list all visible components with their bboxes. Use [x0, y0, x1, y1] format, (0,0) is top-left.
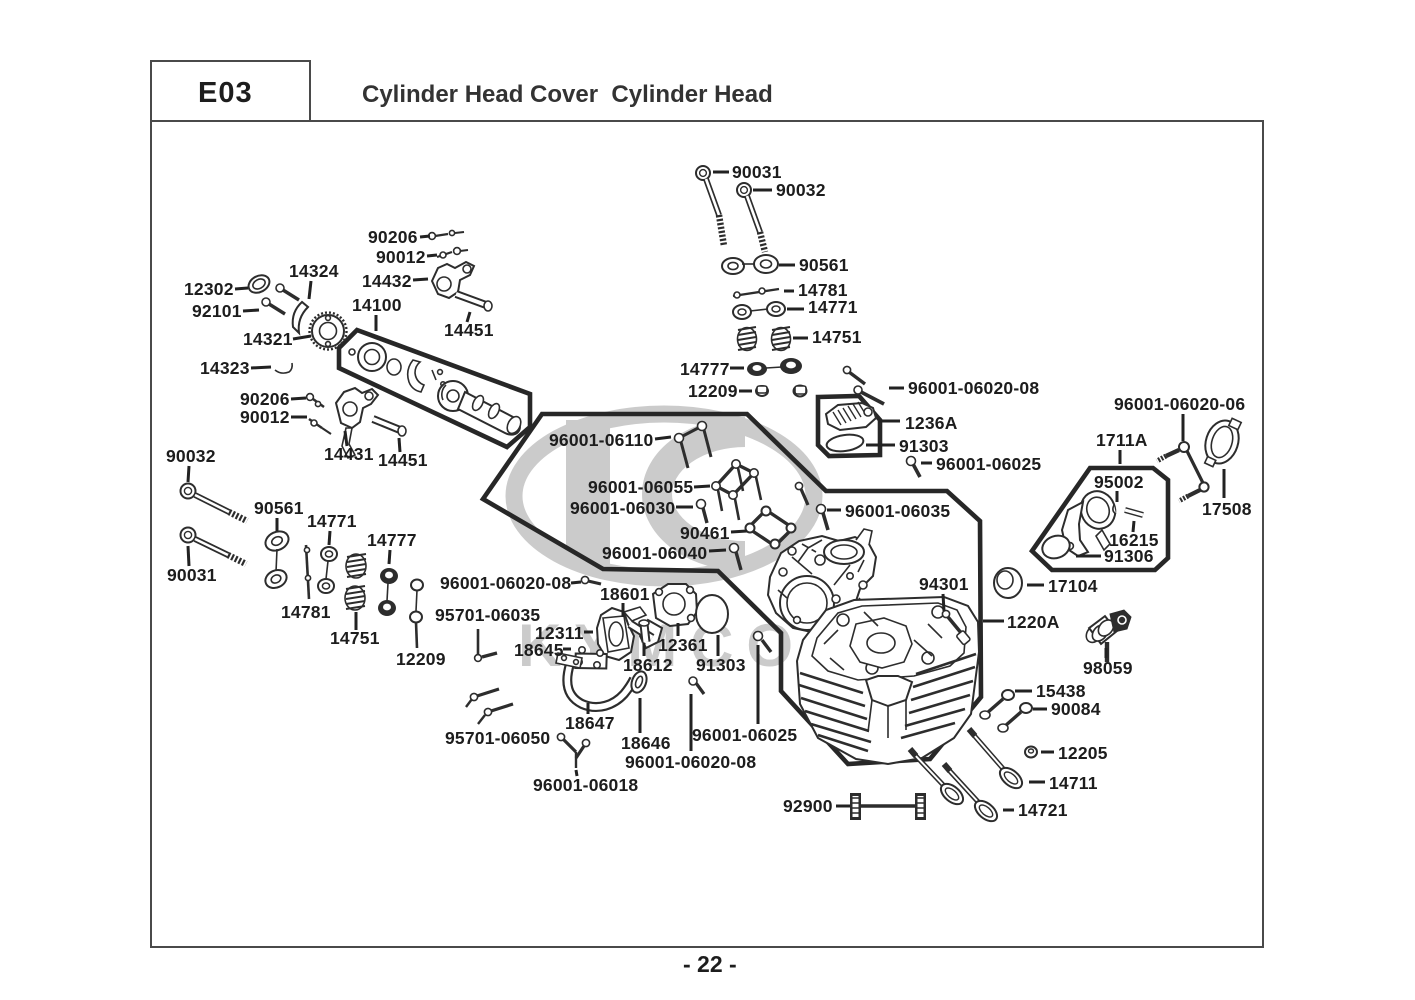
- svg-text:90031: 90031: [732, 162, 782, 182]
- svg-text:17508: 17508: [1202, 499, 1252, 519]
- svg-text:90032: 90032: [776, 180, 826, 200]
- svg-text:96001-06040: 96001-06040: [602, 543, 707, 563]
- svg-text:14751: 14751: [812, 327, 862, 347]
- svg-text:15438: 15438: [1036, 681, 1086, 701]
- svg-text:14451: 14451: [378, 450, 428, 470]
- svg-text:90032: 90032: [166, 446, 216, 466]
- svg-text:18645: 18645: [514, 640, 564, 660]
- svg-text:96001-06020-08: 96001-06020-08: [625, 752, 756, 772]
- svg-text:12209: 12209: [688, 381, 738, 401]
- svg-text:90084: 90084: [1051, 699, 1101, 719]
- svg-text:14432: 14432: [362, 271, 412, 291]
- svg-text:Cylinder Head Cover Cylinder: Cylinder Head Cover Cylinder Head: [362, 81, 773, 108]
- svg-text:96001-06035: 96001-06035: [845, 501, 950, 521]
- svg-text:E03: E03: [198, 77, 253, 109]
- svg-text:90461: 90461: [680, 523, 730, 543]
- svg-text:96001-06020-06: 96001-06020-06: [1114, 394, 1245, 414]
- svg-text:92101: 92101: [192, 301, 242, 321]
- svg-text:14321: 14321: [243, 329, 293, 349]
- svg-text:14431: 14431: [324, 444, 374, 464]
- svg-text:96001-06030: 96001-06030: [570, 498, 675, 518]
- svg-text:96001-06055: 96001-06055: [588, 477, 693, 497]
- svg-text:1220A: 1220A: [1007, 612, 1060, 632]
- svg-text:12209: 12209: [396, 649, 446, 669]
- svg-text:12205: 12205: [1058, 743, 1108, 763]
- svg-text:1711A: 1711A: [1096, 430, 1148, 450]
- svg-text:14777: 14777: [680, 359, 730, 379]
- svg-text:96001-06018: 96001-06018: [533, 775, 638, 795]
- svg-text:17104: 17104: [1048, 576, 1098, 596]
- svg-text:90012: 90012: [240, 407, 290, 427]
- svg-text:12302: 12302: [184, 279, 234, 299]
- svg-text:96001-06025: 96001-06025: [936, 454, 1041, 474]
- svg-text:14721: 14721: [1018, 800, 1068, 820]
- svg-text:14751: 14751: [330, 628, 380, 648]
- svg-text:90561: 90561: [254, 498, 304, 518]
- svg-text:14711: 14711: [1049, 773, 1098, 793]
- svg-text:96001-06110: 96001-06110: [549, 430, 653, 450]
- svg-text:14771: 14771: [307, 511, 357, 531]
- svg-text:18647: 18647: [565, 713, 615, 733]
- svg-text:12361: 12361: [658, 635, 708, 655]
- svg-text:90031: 90031: [167, 565, 217, 585]
- svg-text:91303: 91303: [899, 436, 949, 456]
- svg-text:91303: 91303: [696, 655, 746, 675]
- svg-text:18646: 18646: [621, 733, 671, 753]
- svg-text:98059: 98059: [1083, 658, 1133, 678]
- svg-text:14777: 14777: [367, 530, 417, 550]
- svg-text:14771: 14771: [808, 297, 858, 317]
- svg-text:- 22 -: - 22 -: [683, 951, 737, 977]
- svg-text:14100: 14100: [352, 295, 402, 315]
- svg-text:91306: 91306: [1104, 546, 1154, 566]
- svg-text:95701-06050: 95701-06050: [445, 728, 550, 748]
- svg-text:96001-06020-08: 96001-06020-08: [440, 573, 571, 593]
- svg-text:96001-06020-08: 96001-06020-08: [908, 378, 1039, 398]
- svg-text:18601: 18601: [600, 584, 650, 604]
- svg-text:14323: 14323: [200, 358, 250, 378]
- svg-text:14781: 14781: [281, 602, 331, 622]
- svg-text:95002: 95002: [1094, 472, 1144, 492]
- svg-text:92900: 92900: [783, 796, 833, 816]
- svg-text:94301: 94301: [919, 574, 969, 594]
- svg-text:14324: 14324: [289, 261, 339, 281]
- svg-text:1236A: 1236A: [905, 413, 958, 433]
- svg-text:14451: 14451: [444, 320, 494, 340]
- svg-text:96001-06025: 96001-06025: [692, 725, 797, 745]
- svg-text:18612: 18612: [623, 655, 673, 675]
- svg-text:95701-06035: 95701-06035: [435, 605, 540, 625]
- svg-text:90012: 90012: [376, 247, 426, 267]
- svg-text:90206: 90206: [240, 389, 290, 409]
- svg-text:90206: 90206: [368, 227, 418, 247]
- svg-text:90561: 90561: [799, 255, 849, 275]
